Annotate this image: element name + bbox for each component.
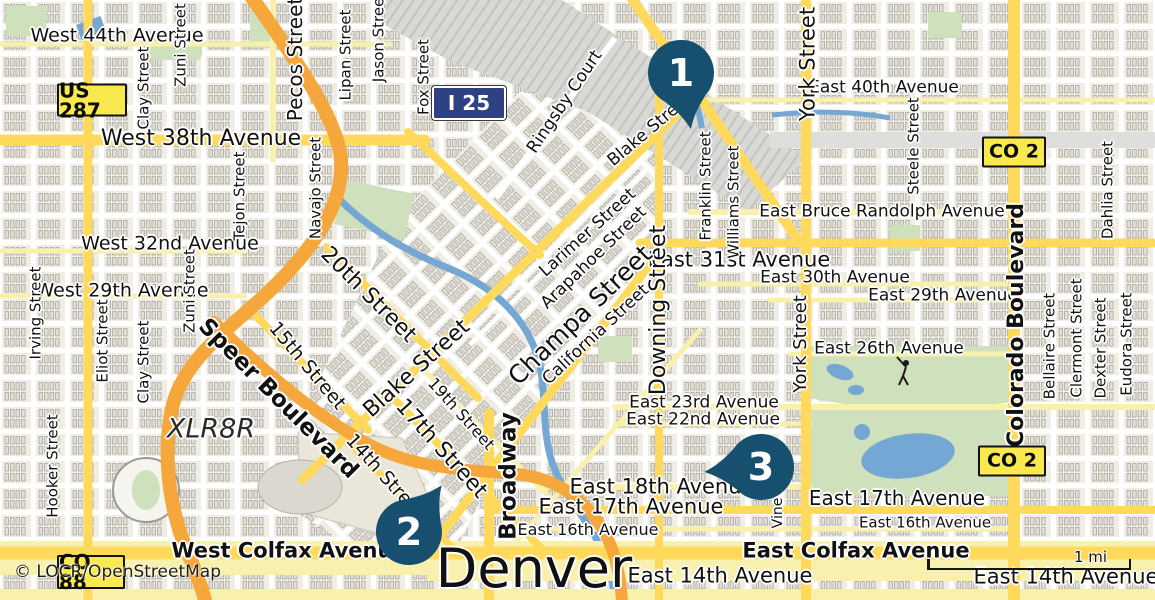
attribution: © LOCR/OpenStreetMap (14, 562, 221, 582)
scale-bar: 1 mi (927, 559, 1131, 570)
marker-layer: 123 (0, 0, 1155, 600)
map-viewport[interactable]: West 44th AvenueWest 38th AvenueEast 40t… (0, 0, 1155, 600)
marker-number: 1 (606, 0, 756, 148)
scale-label: 1 mi (1074, 548, 1107, 566)
map-marker-1[interactable]: 1 (606, 0, 756, 148)
map-marker-2[interactable]: 2 (334, 457, 484, 600)
marker-number: 2 (334, 457, 484, 600)
map-marker-3[interactable]: 3 (686, 392, 836, 542)
marker-number: 3 (686, 392, 836, 542)
